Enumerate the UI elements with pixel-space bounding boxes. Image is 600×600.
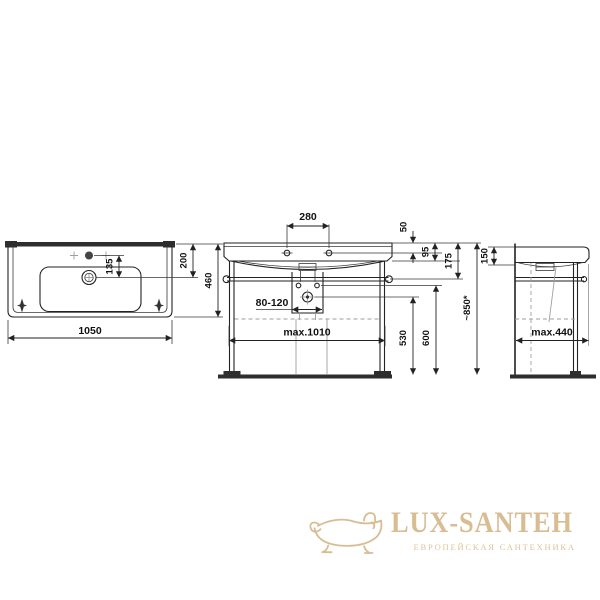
brand-name: LUX-SANTEH bbox=[391, 508, 573, 538]
basin-front-outline bbox=[224, 243, 392, 261]
svg-text:95: 95 bbox=[421, 246, 432, 257]
wall-edge-bar bbox=[6, 242, 174, 247]
bowl-curve bbox=[231, 261, 385, 270]
towel-rail bbox=[223, 276, 392, 283]
svg-text:50: 50 bbox=[399, 222, 410, 233]
svg-text:280: 280 bbox=[299, 211, 317, 223]
floor-line-side bbox=[510, 375, 596, 379]
dim-50: 50 bbox=[399, 222, 414, 263]
dim-600: 600 bbox=[321, 286, 442, 375]
dim-200: 200 bbox=[176, 244, 223, 278]
svg-text:max.1010: max.1010 bbox=[283, 327, 330, 339]
svg-text:80-120: 80-120 bbox=[256, 297, 289, 309]
fixing-cross-left bbox=[17, 299, 27, 313]
svg-text:175: 175 bbox=[444, 252, 455, 269]
dim-850: ~850* bbox=[462, 243, 477, 375]
top-view: 135 200 460 1050 bbox=[5, 241, 223, 344]
dim-95: 95 bbox=[421, 243, 436, 261]
svg-text:460: 460 bbox=[204, 273, 215, 289]
svg-text:max.440: max.440 bbox=[531, 327, 573, 339]
front-view: 280 80-120 max.1010 50 95 1 bbox=[218, 211, 481, 379]
dim-max-1010: max.1010 bbox=[229, 326, 385, 346]
brand-tagline: ЕВРОПЕЙСКАЯ САНТЕХНИКА bbox=[413, 542, 575, 552]
basin-side-profile bbox=[515, 247, 589, 263]
towel-rail-side bbox=[515, 277, 587, 282]
svg-text:~850*: ~850* bbox=[462, 295, 473, 320]
outlet-crosshair bbox=[300, 290, 315, 305]
drain-symbol bbox=[82, 271, 96, 285]
svg-text:600: 600 bbox=[421, 330, 432, 346]
brand-logo: LUX-SANTEH ЕВРОПЕЙСКАЯ САНТЕХНИКА bbox=[306, 490, 598, 570]
svg-text:1050: 1050 bbox=[78, 325, 102, 337]
side-view: 150 max.440 bbox=[480, 244, 597, 379]
fixing-cross-right bbox=[154, 299, 164, 313]
svg-text:530: 530 bbox=[398, 330, 409, 346]
dim-150: 150 bbox=[480, 247, 516, 265]
dim-1050: 1050 bbox=[8, 320, 172, 344]
bathtub-icon bbox=[306, 497, 391, 563]
svg-text:135: 135 bbox=[105, 258, 116, 275]
overflow-detail-side bbox=[536, 264, 554, 271]
page: { "drawing": { "stroke_color": "#222222"… bbox=[0, 0, 600, 600]
floor-line-front bbox=[218, 375, 392, 379]
frame-legs bbox=[224, 261, 392, 376]
tap-hole bbox=[85, 252, 93, 260]
tap-hole-symbols bbox=[282, 250, 335, 256]
svg-text:200: 200 bbox=[179, 253, 190, 269]
svg-text:150: 150 bbox=[480, 248, 491, 264]
